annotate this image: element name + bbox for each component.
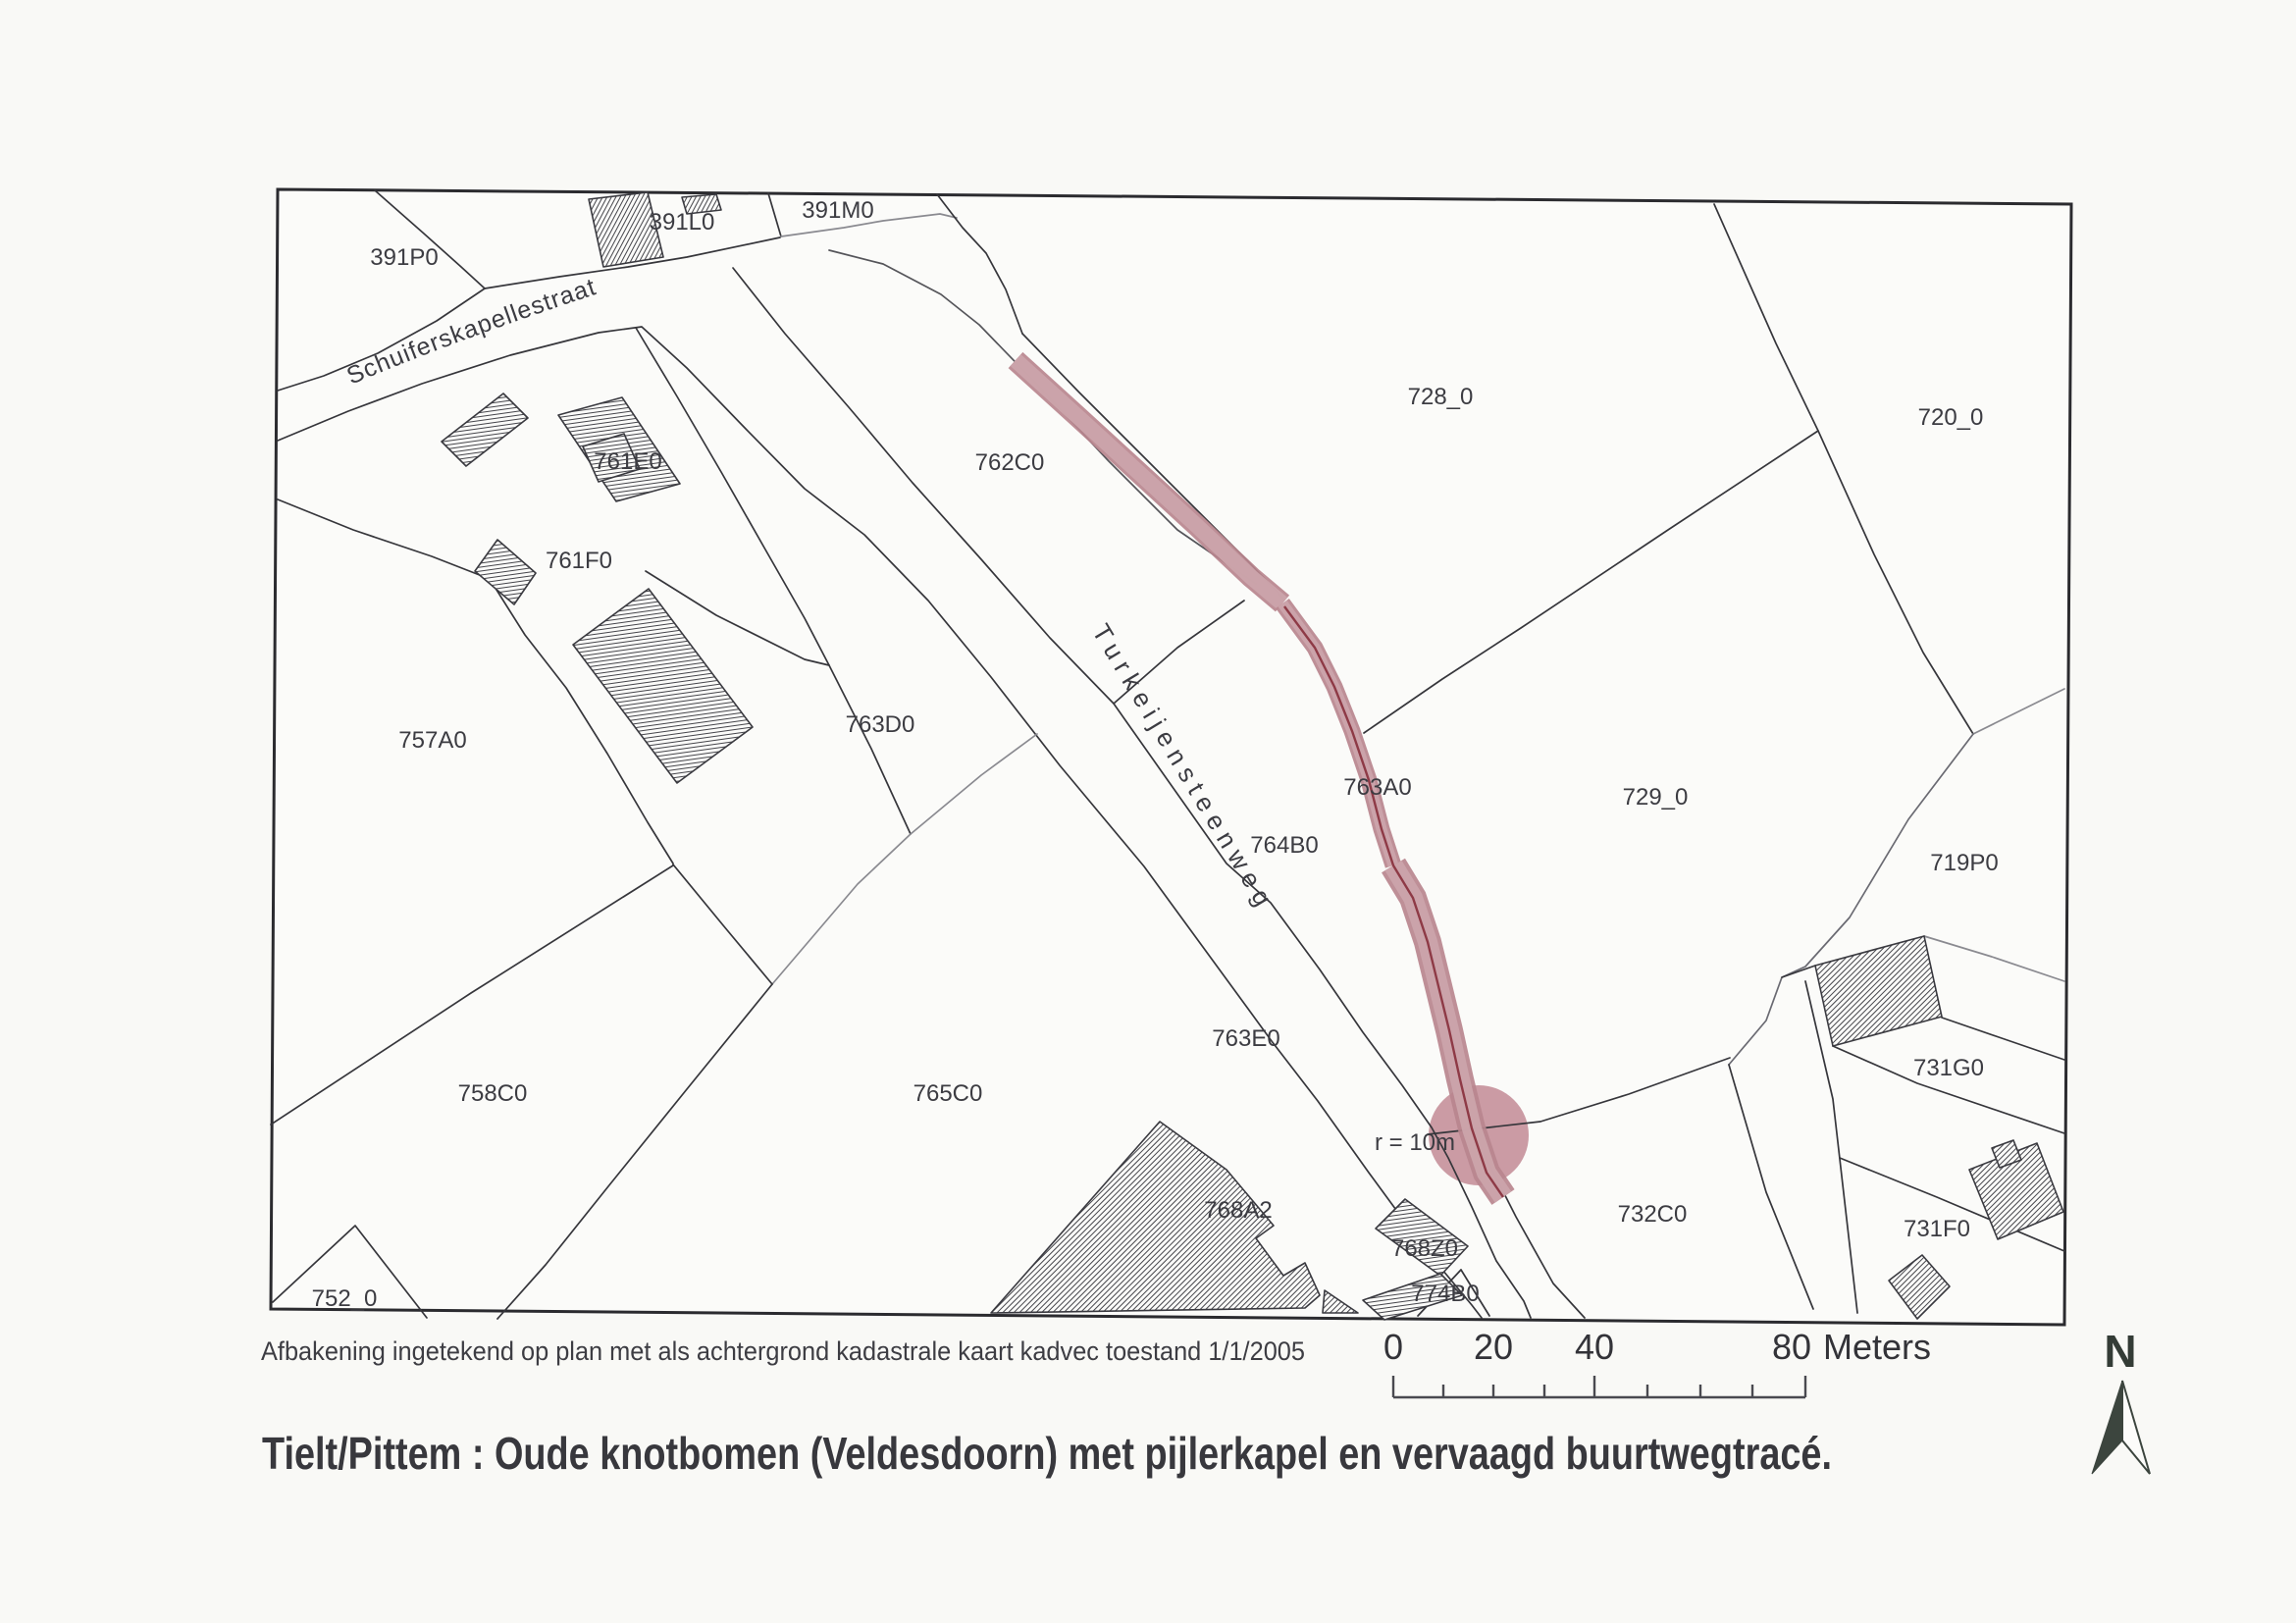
svg-text:Meters: Meters [1823, 1327, 1931, 1367]
svg-text:728_0: 728_0 [1408, 384, 1474, 410]
svg-text:761F0: 761F0 [546, 548, 612, 574]
svg-text:0: 0 [1383, 1327, 1403, 1367]
svg-text:731F0: 731F0 [1904, 1216, 1970, 1242]
svg-text:20: 20 [1474, 1327, 1513, 1367]
svg-text:764B0: 764B0 [1250, 832, 1318, 859]
svg-text:763A0: 763A0 [1343, 774, 1411, 801]
svg-text:757A0: 757A0 [398, 727, 466, 754]
svg-text:732C0: 732C0 [1618, 1201, 1688, 1228]
svg-text:765C0: 765C0 [913, 1080, 983, 1107]
svg-text:Tielt/Pittem : Oude knotbomen: Tielt/Pittem : Oude knotbomen (Veldesdoo… [262, 1428, 1832, 1479]
svg-text:731G0: 731G0 [1913, 1055, 1984, 1081]
svg-text:N: N [2104, 1326, 2136, 1377]
svg-text:720_0: 720_0 [1918, 404, 1984, 431]
svg-text:40: 40 [1575, 1327, 1614, 1367]
svg-text:768A2: 768A2 [1204, 1197, 1272, 1224]
svg-text:Afbakening ingetekend op plan: Afbakening ingetekend op plan met als ac… [261, 1336, 1305, 1366]
svg-text:768Z0: 768Z0 [1391, 1235, 1458, 1262]
svg-text:391M0: 391M0 [802, 197, 873, 224]
svg-text:774B0: 774B0 [1411, 1281, 1479, 1307]
svg-text:391L0: 391L0 [650, 209, 715, 236]
svg-text:752_0: 752_0 [312, 1285, 378, 1312]
svg-text:r = 10m: r = 10m [1375, 1129, 1455, 1156]
svg-text:391P0: 391P0 [370, 244, 438, 271]
svg-text:762C0: 762C0 [975, 449, 1045, 476]
svg-text:761E0: 761E0 [594, 448, 661, 475]
svg-text:763E0: 763E0 [1212, 1025, 1279, 1052]
svg-text:763D0: 763D0 [846, 711, 915, 738]
svg-text:729_0: 729_0 [1623, 784, 1689, 811]
svg-text:758C0: 758C0 [458, 1080, 528, 1107]
svg-text:719P0: 719P0 [1930, 850, 1998, 876]
svg-text:80: 80 [1772, 1327, 1811, 1367]
